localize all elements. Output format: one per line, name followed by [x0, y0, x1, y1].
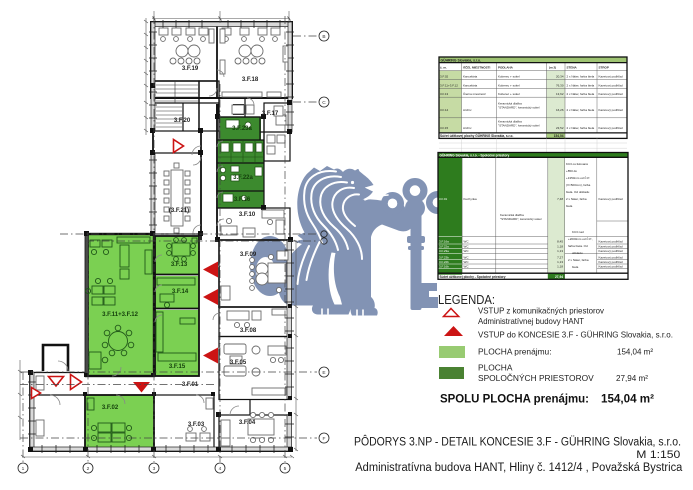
svg-text:Koberec + sokel: Koberec + sokel	[498, 75, 520, 79]
svg-text:3.F.01: 3.F.01	[182, 382, 199, 388]
svg-text:154,04 m²: 154,04 m²	[617, 347, 653, 357]
svg-text:farba biela. Od: farba biela. Od	[568, 244, 588, 248]
svg-text:3.F.16b: 3.F.16b	[439, 265, 449, 269]
svg-text:3.F.20: 3.F.20	[174, 118, 191, 124]
svg-text:Čierna miestnosť: Čierna miestnosť	[463, 91, 487, 96]
svg-text:1,13: 1,13	[557, 249, 563, 253]
svg-text:3.F.23a: 3.F.23a	[232, 126, 252, 132]
svg-text:Koberec + sokel: Koberec + sokel	[498, 92, 520, 96]
svg-text:3.F.16a: 3.F.16a	[439, 240, 449, 244]
svg-text:biela: biela	[566, 204, 573, 208]
svg-text:1: 1	[22, 466, 25, 472]
svg-text:13,62: 13,62	[556, 92, 564, 96]
svg-text:E: E	[322, 370, 325, 376]
svg-text:3.F.14: 3.F.14	[440, 108, 449, 112]
svg-text:2 x Náter, farba: 2 x Náter, farba	[568, 258, 589, 262]
svg-text:Kazetový podhľad: Kazetový podhľad	[599, 265, 623, 269]
svg-text:WC: WC	[464, 260, 470, 264]
svg-text:16,26: 16,26	[556, 108, 564, 112]
svg-text:biela: biela	[572, 265, 579, 269]
svg-text:3.F.11+3.F.12: 3.F.11+3.F.12	[102, 312, 139, 318]
svg-text:3.F.22a: 3.F.22a	[439, 245, 449, 249]
svg-text:3.F.18: 3.F.18	[242, 77, 259, 83]
svg-text:27,94: 27,94	[555, 275, 563, 279]
svg-text:PLOCHA: PLOCHA	[478, 363, 513, 373]
svg-text:5: 5	[284, 466, 287, 472]
svg-text:27,94 m²: 27,94 m²	[616, 373, 648, 383]
svg-text:Archív: Archív	[463, 108, 472, 112]
svg-text:KC3 os tklovaná: KC3 os tklovaná	[566, 162, 588, 166]
svg-text:WC: WC	[464, 255, 470, 259]
svg-text:"STANDARD", keramický sokel: "STANDARD", keramický sokel	[500, 217, 542, 221]
svg-text:WC: WC	[464, 249, 470, 253]
svg-text:3.F.22b: 3.F.22b	[439, 260, 449, 264]
svg-text:Administratívnej budovy HANT: Administratívnej budovy HANT	[478, 316, 584, 326]
svg-text:2 x Náter, farba biela: 2 x Náter, farba biela	[567, 75, 595, 79]
svg-text:3.F.15: 3.F.15	[440, 126, 449, 130]
svg-text:3.F.01: 3.F.01	[439, 197, 448, 201]
svg-text:3.F.02: 3.F.02	[102, 405, 119, 411]
svg-text:Kazetový podhľad: Kazetový podhľad	[599, 260, 623, 264]
svg-text:8,45: 8,45	[557, 240, 563, 244]
svg-text:VSTUP do KONCESIE 3.F - GÜHRIN: VSTUP do KONCESIE 3.F - GÜHRING Slovakia…	[478, 330, 673, 340]
svg-text:Archív: Archív	[463, 126, 472, 130]
svg-text:3.F.17: 3.F.17	[262, 111, 279, 117]
svg-text:Kazetový podhľad: Kazetový podhľad	[599, 240, 623, 244]
svg-text:GÜHRING Slovakia, s.r.o. - Spo: GÜHRING Slovakia, s.r.o. - Spoločné prie…	[440, 152, 510, 157]
svg-text:obkladu: obkladu	[572, 251, 583, 255]
svg-text:3.F.05: 3.F.05	[230, 360, 247, 366]
svg-text:Kazetový podhľad: Kazetový podhľad	[599, 255, 623, 259]
svg-text:ÚČEL MIESTNOSTI: ÚČEL MIESTNOSTI	[463, 65, 490, 70]
svg-text:3.F.19: 3.F.19	[182, 66, 199, 72]
svg-text:7,48: 7,48	[557, 197, 563, 201]
svg-text:STENA: STENA	[567, 66, 578, 70]
svg-text:Kazetový podhľad: Kazetový podhľad	[599, 84, 623, 88]
svg-text:(3.F.21): (3.F.21)	[169, 208, 189, 214]
svg-text:Kazetový podhľad: Kazetový podhľad	[599, 108, 623, 112]
svg-text:76,30: 76,30	[556, 84, 564, 88]
svg-text:biela. Od obkladu: biela. Od obkladu	[566, 190, 590, 194]
svg-text:SPOLU PLOCHA prenájmu:: SPOLU PLOCHA prenájmu:	[440, 392, 589, 406]
svg-text:Kazetový podhľad: Kazetový podhľad	[599, 249, 623, 253]
svg-text:Koberec + sokel: Koberec + sokel	[498, 84, 520, 88]
svg-text:4: 4	[219, 466, 222, 472]
svg-text:(m 2): (m 2)	[549, 66, 556, 70]
svg-text:Kancelária: Kancelária	[463, 84, 478, 88]
svg-text:154,04 m²: 154,04 m²	[601, 392, 654, 406]
svg-text:B: B	[322, 34, 325, 40]
svg-text:2: 2	[87, 466, 90, 472]
svg-text:Administratívna budova HANT, H: Administratívna budova HANT, Hliny č. 14…	[355, 462, 683, 474]
svg-text:"STANDARD", keramický sokel: "STANDARD", keramický sokel	[498, 106, 540, 110]
svg-text:WC: WC	[464, 265, 470, 269]
svg-text:Kancelária: Kancelária	[463, 75, 478, 79]
svg-text:Keramická dlažba: Keramická dlažba	[498, 102, 522, 106]
svg-text:3.F.14: 3.F.14	[172, 289, 189, 295]
svg-text:1,13: 1,13	[557, 260, 563, 264]
svg-text:154,04: 154,04	[554, 134, 564, 138]
svg-text:VSTUP z komunikačných priestor: VSTUP z komunikačných priestorov	[478, 306, 605, 316]
svg-text:1,18: 1,18	[557, 245, 563, 249]
svg-text:1,18: 1,18	[557, 265, 563, 269]
svg-text:STROP: STROP	[599, 66, 609, 70]
svg-text:7,27: 7,27	[557, 255, 563, 259]
svg-text:Kazetový podhľad: Kazetový podhľad	[599, 197, 623, 201]
svg-text:KC3 nad: KC3 nad	[572, 230, 584, 234]
svg-text:C: C	[322, 100, 326, 106]
svg-text:GÜHRING Slovakia, s.r.o.: GÜHRING Slovakia, s.r.o.	[441, 58, 482, 63]
svg-text:3.F.22a: 3.F.22a	[233, 175, 253, 181]
svg-text:Súčet úžitkovej plochy - Spolo: Súčet úžitkovej plochy - Spoločné priest…	[440, 275, 506, 279]
svg-text:3.F.23b: 3.F.23b	[439, 255, 449, 259]
svg-text:Kazetový podhľad: Kazetový podhľad	[599, 75, 623, 79]
svg-text:Kuchynka: Kuchynka	[464, 197, 478, 201]
svg-text:"STANDARD", keramický sokel: "STANDARD", keramický sokel	[498, 124, 540, 128]
svg-text:3: 3	[153, 466, 156, 472]
svg-text:3.F.13: 3.F.13	[171, 262, 188, 268]
svg-text:č. m.: č. m.	[440, 66, 447, 70]
svg-text:3.F.02: 3.F.02	[440, 75, 449, 79]
svg-text:WC: WC	[464, 240, 470, 244]
svg-text:Kazetový podhľad: Kazetový podhľad	[599, 245, 623, 249]
svg-text:F: F	[323, 436, 326, 442]
svg-text:Keramická dlažba: Keramická dlažba	[498, 120, 522, 124]
svg-text:PÔDORYS 3.NP - DETAIL KONCESIE: PÔDORYS 3.NP - DETAIL KONCESIE 3.F - GÜH…	[354, 436, 681, 449]
svg-text:+2000mm od Č.P.,: +2000mm od Č.P.,	[568, 236, 593, 241]
svg-text:2 x Náter, farba biela: 2 x Náter, farba biela	[567, 84, 595, 88]
svg-text:3.F.10: 3.F.10	[239, 212, 256, 218]
svg-text:M 1:150: M 1:150	[636, 449, 680, 461]
svg-text:2 x Náter, farba biela: 2 x Náter, farba biela	[567, 108, 595, 112]
svg-text:+1350mm od Č.P.: +1350mm od Č.P.	[566, 175, 590, 180]
svg-text:+850 do: +850 do	[566, 169, 577, 173]
svg-text:23,52: 23,52	[556, 126, 564, 130]
svg-text:20,34: 20,34	[556, 75, 564, 79]
svg-text:Keramická dlažba: Keramická dlažba	[500, 213, 524, 217]
svg-text:3.F.03: 3.F.03	[188, 422, 205, 428]
svg-text:3.F.23a: 3.F.23a	[439, 249, 449, 253]
svg-text:2 x Náter, farba biela: 2 x Náter, farba biela	[567, 126, 595, 130]
svg-text:3.F.11+3.F.12: 3.F.11+3.F.12	[440, 84, 458, 88]
svg-text:(V=500mm), farba: (V=500mm), farba	[566, 183, 591, 187]
svg-text:3.F.15: 3.F.15	[169, 364, 186, 370]
svg-text:3.F.04: 3.F.04	[239, 420, 256, 426]
svg-text:PODLAHA: PODLAHA	[498, 66, 514, 70]
svg-text:Súčet úžitkovej plochy GÜHRING: Súčet úžitkovej plochy GÜHRING Slovakia,…	[440, 133, 513, 138]
svg-text:Kazetový podhľad: Kazetový podhľad	[599, 126, 623, 130]
svg-text:3.F.09: 3.F.09	[240, 252, 257, 258]
svg-text:3.F.13: 3.F.13	[440, 92, 449, 96]
svg-text:3.F.16: 3.F.16	[234, 197, 251, 203]
svg-text:2 x Náter, farba biela: 2 x Náter, farba biela	[567, 92, 595, 96]
svg-text:Kazetový podhľad: Kazetový podhľad	[599, 92, 623, 96]
svg-text:WC: WC	[464, 245, 470, 249]
svg-text:3.F.08: 3.F.08	[240, 328, 257, 334]
svg-text:SPOLOČNÝCH PRIESTOROV: SPOLOČNÝCH PRIESTOROV	[478, 373, 594, 383]
svg-text:PLOCHA prenájmu:: PLOCHA prenájmu:	[478, 347, 552, 357]
svg-text:2 x Náter, farba: 2 x Náter, farba	[566, 197, 587, 201]
